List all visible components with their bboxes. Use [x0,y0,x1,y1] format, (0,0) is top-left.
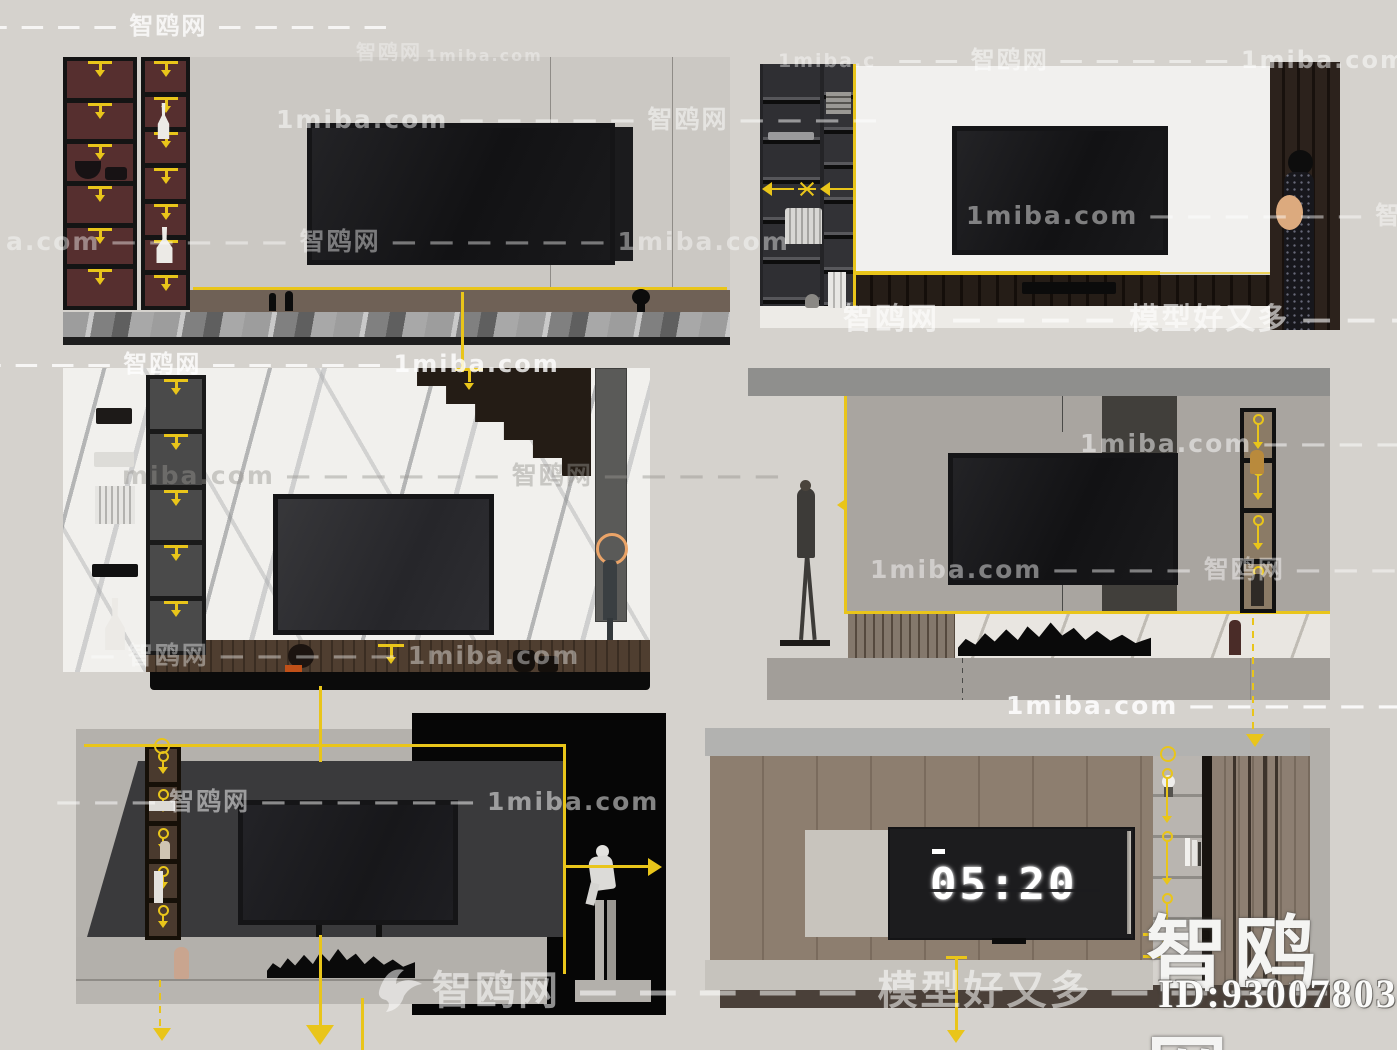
down-arrow-glyph-icon [154,168,178,184]
sphere-decor [1276,195,1303,230]
candlestick-decor [285,291,293,311]
clock-time: 05:20 [930,859,1077,910]
down-arrow-glyph-icon [164,434,188,450]
down-arrow-glyph-icon [153,1028,171,1041]
elevation-panel-3 [63,368,650,690]
down-arrow-glyph-icon [378,644,404,664]
bookcase-column-right [141,57,190,310]
elevation-panel-1 [63,57,730,345]
down-arrow-glyph-icon [164,545,188,561]
down-arrow-glyph-icon [88,186,112,202]
tv-leg [376,925,382,937]
shelf-column [146,375,206,655]
down-arrow-glyph-icon [88,103,112,119]
shelf-cell [149,903,177,936]
watermark-text: — — — — 智鸥网 — — — — — [0,6,389,41]
doll-figurine [174,947,189,979]
shelf-cell [145,168,186,199]
platform-seam [1250,658,1251,700]
left-arrow-glyph-icon [837,498,847,512]
left-arrow-glyph-icon [820,182,853,196]
connector-line [319,935,322,1027]
down-arrow-glyph-icon [164,490,188,506]
down-arrow-chain-icon [1160,768,1174,823]
down-arrow-glyph-icon [154,275,178,291]
shelf-cell [67,103,133,140]
figure-sculpture [800,480,811,491]
down-arrow-glyph-icon [1246,734,1264,747]
bookcase-column-left [63,57,137,310]
gull-logo-icon [372,958,424,1016]
star-glyph-icon [798,180,816,198]
clock-tv: 05:20 [888,827,1135,940]
site-logo: 智鸥网 [1146,888,1397,1050]
down-arrow-glyph-icon [88,269,112,285]
book-decor [154,871,163,903]
gold-figurine [1250,450,1264,474]
shelf-cell [1244,513,1272,559]
tv-edge-highlight [1127,831,1131,934]
down-arrow-glyph-icon [164,379,188,395]
floor-platform [767,658,1330,700]
model-id-label: ID:930078036 [1158,970,1397,1017]
figure-sculpture [797,488,815,558]
shelf-cell [145,275,186,306]
clock-flip-line [928,889,1100,892]
shelf-cell [150,545,202,595]
ring-glyph-icon [154,738,170,754]
shelf-cell [150,490,202,540]
books-vertical [1198,842,1201,866]
connector-line [319,686,322,762]
shelf-cell [150,379,202,429]
plinth-base [150,672,650,690]
tray-decor [92,564,138,577]
figurine-decor [1229,620,1241,655]
right-arrow-glyph-icon [648,858,662,876]
arrow-shaft [566,865,648,868]
basket-decor [513,650,535,672]
tv-screen [948,453,1178,585]
down-arrow-glyph-icon [306,1025,334,1045]
books-vertical [828,272,846,308]
down-arrow-chain-icon [1251,414,1265,449]
vase-decor [637,303,645,312]
measure-line [1160,272,1270,274]
down-arrow-glyph-icon [154,97,178,113]
figure-base [780,640,830,646]
wall-seam [672,57,673,290]
tv-screen [952,126,1168,255]
down-arrow-glyph-icon [88,144,112,160]
shelf-edge-line [853,64,856,306]
wall-seam [1062,396,1063,432]
shelf-cell [145,61,186,92]
connector-line-dashed [159,980,161,1030]
candlestick-decor [269,293,276,311]
bench-shadow-strip [63,337,730,345]
wood-side-wall [705,396,842,675]
tv-backing-panel [615,127,633,261]
basket-decor [538,656,558,672]
plank-shadow-zone [848,614,955,658]
ring-glyph-icon [1160,746,1176,762]
down-arrow-chain-icon [156,751,170,774]
shelf-cell [149,749,177,782]
dark-figurine [1251,574,1264,606]
books-stack [826,92,851,114]
books-vertical [1185,838,1190,866]
down-arrow-glyph-icon [154,204,178,220]
tv-screen [307,123,615,265]
down-arrow-chain-icon [156,905,170,928]
tv-screen [238,800,458,925]
stone-bench [63,312,730,337]
radiator-decor [785,208,822,244]
elevation-panel-4 [705,368,1330,700]
cat-figurine [805,294,819,308]
down-arrow-glyph-icon [947,1030,965,1043]
connector-line-dashed [1252,618,1254,736]
shelf-cell [67,186,133,223]
shelf-cell [67,269,133,306]
ceiling-band [705,728,1330,756]
elevation-panel-2 [760,62,1340,330]
books-vertical [1192,840,1197,866]
white-stack-decor [149,801,175,811]
radio-decor [94,452,134,467]
down-arrow-glyph-icon [154,61,178,77]
figurine-decor [160,841,170,859]
bowl-decor [105,167,127,180]
tray-decor [768,132,814,140]
connector-line [361,998,364,1050]
floor-base-strip [760,306,1270,328]
shelf-cell [67,61,133,98]
down-arrow-glyph-icon [164,601,188,617]
down-arrow-glyph-icon [455,368,483,390]
soundbar [1022,282,1116,294]
speaker-decor [96,408,132,424]
hanging-figure-sculpture [603,560,617,620]
orange-box-decor [285,665,302,672]
down-arrow-glyph-icon [88,228,112,244]
clock-flip-dash [932,849,945,854]
radiator-decor [95,486,135,524]
left-arrow-glyph-icon [762,182,794,196]
connector-line [461,292,464,372]
ceiling-band [748,368,1330,396]
shelf-cell [150,601,202,651]
platform-seam-dashed [962,658,963,700]
tv-screen [273,494,494,635]
shelf-cell [150,434,202,484]
down-arrow-chain-icon [1251,515,1265,550]
down-arrow-glyph-icon [88,61,112,77]
shelf-cell [67,228,133,265]
tv-foot [992,938,1026,944]
model-preview-sheet: 05:20 [0,0,1397,1050]
down-arrow-chain-icon [1160,831,1174,886]
measure-line [563,744,566,974]
